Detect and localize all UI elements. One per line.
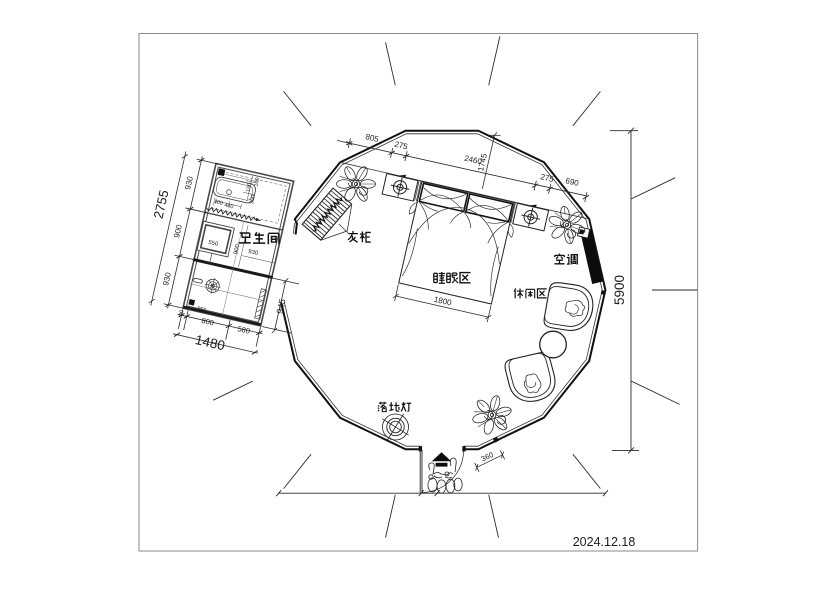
svg-text:2755: 2755 — [151, 189, 172, 221]
svg-text:900: 900 — [172, 223, 184, 239]
svg-text:580: 580 — [237, 324, 251, 336]
svg-text:1480: 1480 — [194, 332, 227, 353]
svg-text:930: 930 — [183, 175, 195, 191]
svg-text:360: 360 — [480, 450, 495, 464]
svg-text:800: 800 — [201, 316, 215, 328]
svg-text:930: 930 — [161, 271, 173, 287]
svg-text:5900: 5900 — [612, 275, 627, 305]
svg-text:945: 945 — [275, 298, 288, 315]
svg-text:805: 805 — [365, 132, 381, 144]
svg-text:690: 690 — [565, 176, 581, 188]
svg-text:950: 950 — [196, 306, 206, 314]
svg-text:1800: 1800 — [433, 295, 453, 308]
svg-text:275: 275 — [540, 172, 556, 184]
svg-text:2024.12.18: 2024.12.18 — [573, 535, 636, 549]
svg-text:275: 275 — [394, 140, 410, 152]
